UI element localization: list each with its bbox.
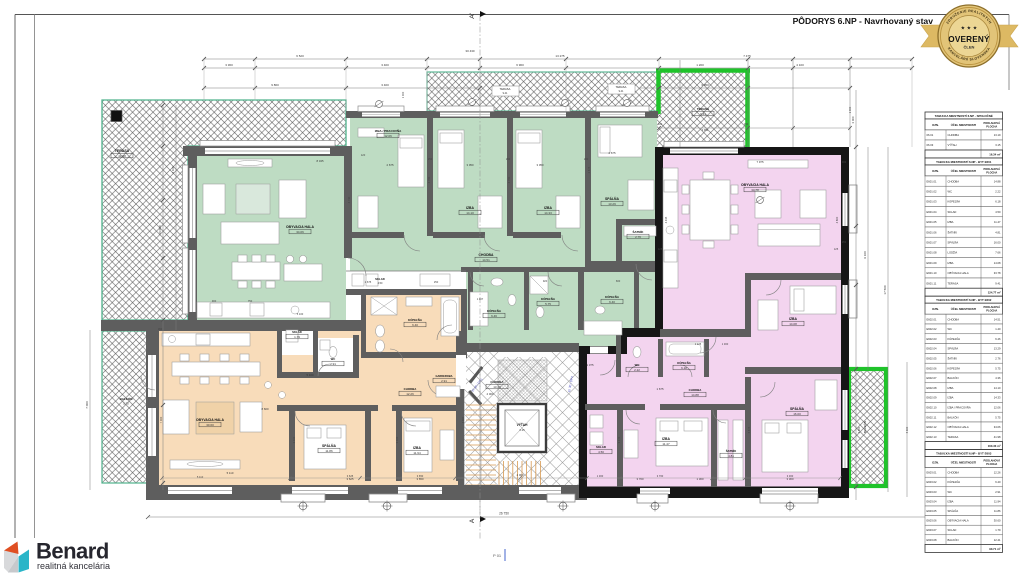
svg-text:250: 250: [506, 157, 511, 161]
svg-text:4 730: 4 730: [347, 196, 351, 203]
svg-text:5.75: 5.75: [995, 415, 1001, 419]
svg-text:6.46: 6.46: [491, 314, 497, 318]
svg-text:E602.13: E602.13: [927, 435, 938, 439]
svg-text:E602.09: E602.09: [927, 396, 938, 400]
svg-text:13.29: 13.29: [994, 347, 1001, 351]
svg-text:TERASA: TERASA: [616, 85, 627, 89]
svg-text:E602.05: E602.05: [927, 357, 938, 361]
svg-text:E602.11: E602.11: [927, 415, 937, 419]
svg-text:WC: WC: [635, 363, 640, 367]
svg-text:1 675: 1 675: [657, 387, 664, 391]
svg-text:125: 125: [658, 247, 663, 251]
svg-text:14.33: 14.33: [544, 211, 552, 215]
svg-text:3 100: 3 100: [292, 436, 296, 443]
svg-text:IZBA / PRACOVŇA: IZBA / PRACOVŇA: [948, 406, 971, 410]
svg-text:WC: WC: [948, 190, 953, 194]
svg-text:3 100: 3 100: [395, 436, 399, 443]
svg-text:6 960: 6 960: [516, 63, 524, 67]
svg-text:11.86: 11.86: [994, 509, 1001, 513]
svg-text:E601.04: E601.04: [927, 210, 938, 214]
svg-text:SKLAD: SKLAD: [948, 210, 957, 214]
svg-text:30 430: 30 430: [465, 49, 475, 53]
svg-text:1.40: 1.40: [995, 327, 1001, 331]
svg-text:KÚPEĽŇA: KÚPEĽŇA: [487, 308, 502, 313]
svg-text:3 170: 3 170: [617, 436, 621, 443]
svg-text:OZN.: OZN.: [932, 307, 939, 311]
svg-text:TERASA: TERASA: [115, 149, 130, 153]
svg-text:3 360: 3 360: [225, 63, 233, 67]
svg-text:SPÁLŇA: SPÁLŇA: [948, 347, 959, 351]
svg-text:IZBA: IZBA: [948, 220, 954, 224]
svg-text:7 000: 7 000: [85, 401, 89, 409]
svg-text:13 275: 13 275: [555, 54, 565, 58]
svg-text:26 750: 26 750: [499, 512, 509, 516]
svg-text:11.94: 11.94: [994, 499, 1001, 503]
svg-text:250: 250: [744, 122, 749, 126]
svg-text:4 000: 4 000: [517, 473, 524, 477]
svg-text:4.81: 4.81: [995, 230, 1001, 234]
svg-text:E602.02: E602.02: [927, 327, 938, 331]
svg-text:SPÁLŇA: SPÁLŇA: [948, 241, 959, 245]
svg-text:ÚČEL MIESTNOSTI: ÚČEL MIESTNOSTI: [951, 306, 977, 311]
svg-text:14.10: 14.10: [466, 211, 474, 215]
svg-text:TABUĽKA MIESTNOSTÍ 6.NP - BYT: TABUĽKA MIESTNOSTÍ 6.NP - BYT E601: [936, 159, 992, 164]
svg-text:2 675: 2 675: [609, 151, 616, 155]
svg-text:360: 360: [158, 327, 163, 331]
svg-text:A: A: [469, 518, 476, 523]
svg-text:SKLAD: SKLAD: [292, 330, 302, 334]
svg-text:CHODBA: CHODBA: [948, 317, 960, 321]
svg-text:4 800: 4 800: [835, 216, 839, 223]
svg-text:E601.10: E601.10: [927, 271, 938, 275]
svg-text:12.26: 12.26: [406, 392, 414, 396]
svg-text:6.40: 6.40: [609, 300, 615, 304]
svg-text:SPÁLŇA: SPÁLŇA: [948, 509, 959, 513]
svg-text:SPÁLŇA: SPÁLŇA: [790, 406, 804, 411]
svg-text:E601.07: E601.07: [927, 241, 938, 245]
svg-text:12.41: 12.41: [994, 538, 1001, 542]
svg-text:CHODBA: CHODBA: [689, 388, 703, 392]
svg-text:6.18: 6.18: [995, 200, 1001, 204]
svg-text:33.78: 33.78: [994, 271, 1001, 275]
svg-text:12.06: 12.06: [994, 406, 1001, 410]
svg-text:9.41: 9.41: [995, 281, 1001, 285]
svg-text:OBÝVACIA HALA: OBÝVACIA HALA: [948, 519, 969, 523]
svg-text:KÚPEĽŇA: KÚPEĽŇA: [408, 317, 423, 322]
svg-text:16 000: 16 000: [158, 225, 162, 235]
svg-text:KÚPEĽŇA: KÚPEĽŇA: [677, 360, 691, 365]
svg-text:OBYVACIA HALA: OBYVACIA HALA: [196, 418, 224, 422]
svg-text:TERASA: TERASA: [500, 87, 511, 91]
svg-text:E603.06: E603.06: [927, 519, 938, 523]
svg-text:SKLAD: SKLAD: [948, 528, 957, 532]
svg-text:3 050: 3 050: [537, 163, 544, 167]
svg-text:3.15: 3.15: [995, 143, 1001, 147]
svg-text:5 110: 5 110: [197, 475, 204, 479]
svg-text:300: 300: [842, 160, 847, 164]
svg-text:4 000: 4 000: [461, 416, 465, 423]
svg-text:TERASA: TERASA: [697, 107, 710, 111]
svg-text:4.50: 4.50: [995, 210, 1001, 214]
svg-text:9 100: 9 100: [863, 251, 867, 259]
svg-text:14.88: 14.88: [691, 393, 699, 397]
svg-text:7 975: 7 975: [757, 160, 764, 164]
svg-text:SPÁLŇA: SPÁLŇA: [322, 443, 336, 448]
svg-text:4 750: 4 750: [507, 176, 511, 183]
svg-text:CHODBA: CHODBA: [490, 380, 504, 384]
svg-text:OBYVACIA HALA: OBYVACIA HALA: [741, 183, 769, 187]
svg-text:CHODBA: CHODBA: [404, 387, 418, 391]
svg-text:41.98: 41.98: [994, 435, 1001, 439]
svg-text:Benard: Benard: [36, 539, 109, 564]
svg-text:4 750: 4 750: [427, 176, 431, 183]
svg-text:7.66: 7.66: [995, 251, 1001, 255]
svg-text:9.41: 9.41: [503, 92, 508, 95]
svg-text:E601.08: E601.08: [927, 251, 938, 255]
svg-text:IZBA: IZBA: [948, 499, 954, 503]
svg-text:IZBA: IZBA: [789, 317, 797, 321]
svg-text:13.29: 13.29: [608, 202, 616, 206]
svg-text:KÚPEĽŇA: KÚPEĽŇA: [948, 200, 961, 204]
svg-text:16.34 m²: 16.34 m²: [989, 153, 1000, 157]
svg-text:4 000: 4 000: [487, 392, 494, 396]
svg-text:IZBA: IZBA: [948, 386, 954, 390]
svg-text:4.36: 4.36: [995, 376, 1001, 380]
svg-text:3 400: 3 400: [381, 63, 389, 67]
svg-text:E603.04: E603.04: [927, 499, 938, 503]
svg-text:4.50: 4.50: [378, 282, 383, 285]
svg-text:E603.02: E603.02: [927, 480, 938, 484]
svg-text:KÚPEĽŇA: KÚPEĽŇA: [948, 366, 961, 370]
svg-text:1 300: 1 300: [697, 477, 704, 481]
svg-text:8 600: 8 600: [262, 407, 269, 411]
svg-text:2.91: 2.91: [441, 379, 447, 383]
svg-text:P 01: P 01: [493, 553, 502, 558]
svg-text:600: 600: [616, 279, 621, 283]
svg-text:4 100: 4 100: [796, 63, 804, 67]
svg-text:★ ★ ★: ★ ★ ★: [961, 26, 978, 32]
svg-text:KÚPEĽŇA: KÚPEĽŇA: [948, 337, 961, 341]
svg-text:13.19: 13.19: [493, 385, 501, 389]
svg-text:OBÝVACIA HALA: OBÝVACIA HALA: [948, 425, 969, 429]
svg-text:06.01: 06.01: [927, 133, 934, 137]
svg-text:PLOCHA: PLOCHA: [986, 462, 997, 466]
svg-text:11.86: 11.86: [325, 449, 333, 453]
svg-text:124.77 m²: 124.77 m²: [988, 291, 1001, 295]
svg-text:1.79: 1.79: [995, 528, 1001, 532]
svg-text:1 000: 1 000: [401, 91, 405, 98]
svg-text:OZN.: OZN.: [932, 169, 939, 173]
svg-text:E603.07: E603.07: [927, 528, 938, 532]
svg-text:ŠATNÍK: ŠATNÍK: [726, 448, 737, 453]
svg-text:WC: WC: [948, 327, 953, 331]
svg-text:ÚČEL MIESTNOSTI: ÚČEL MIESTNOSTI: [951, 460, 977, 465]
svg-text:2.22: 2.22: [995, 190, 1001, 194]
svg-text:3 300: 3 300: [787, 474, 794, 478]
svg-text:E602.08: E602.08: [927, 386, 938, 390]
svg-text:90.71 m²: 90.71 m²: [989, 547, 1000, 551]
svg-text:250: 250: [434, 280, 439, 284]
svg-text:125: 125: [834, 247, 839, 251]
svg-text:2.22: 2.22: [634, 368, 640, 372]
svg-text:14.08: 14.08: [789, 322, 797, 326]
svg-text:1 000: 1 000: [848, 106, 852, 113]
svg-text:200: 200: [584, 157, 589, 161]
svg-text:34.06: 34.06: [296, 230, 304, 234]
svg-text:OZN.: OZN.: [932, 461, 939, 465]
svg-text:41.98: 41.98: [118, 154, 126, 158]
svg-text:PLOCHA: PLOCHA: [986, 171, 997, 175]
svg-text:16.00: 16.00: [793, 412, 801, 416]
svg-text:CHODBA: CHODBA: [948, 179, 960, 183]
svg-text:2 900: 2 900: [857, 426, 861, 433]
svg-text:11.94: 11.94: [413, 451, 421, 455]
svg-text:14.88: 14.88: [994, 179, 1001, 183]
svg-text:OBÝVACIA HALA: OBÝVACIA HALA: [948, 271, 969, 275]
svg-text:WC: WC: [331, 357, 336, 361]
svg-text:SPÁLŇA: SPÁLŇA: [605, 196, 619, 201]
svg-text:2 675: 2 675: [387, 163, 394, 167]
svg-text:1 225: 1 225: [695, 342, 702, 346]
svg-text:TERASA: TERASA: [948, 435, 959, 439]
svg-text:E603.03: E603.03: [927, 490, 938, 494]
svg-text:1 407: 1 407: [477, 297, 484, 301]
svg-text:SKLAD: SKLAD: [375, 277, 385, 281]
svg-text:14.51: 14.51: [482, 258, 490, 262]
svg-text:SKLAD: SKLAD: [596, 445, 606, 449]
svg-text:6.46: 6.46: [995, 337, 1001, 341]
svg-text:2.76: 2.76: [635, 235, 641, 239]
svg-text:TERASA: TERASA: [948, 281, 959, 285]
svg-text:E602.04: E602.04: [927, 347, 938, 351]
svg-text:PLOCHA: PLOCHA: [986, 309, 997, 313]
svg-text:E602.03: E602.03: [927, 337, 938, 341]
svg-text:6.40: 6.40: [995, 480, 1001, 484]
svg-text:KÚPEĽŇA: KÚPEĽŇA: [541, 296, 556, 301]
svg-text:14.10: 14.10: [994, 386, 1001, 390]
svg-text:OBYVACIA HALA: OBYVACIA HALA: [286, 225, 314, 229]
svg-text:920: 920: [543, 279, 548, 283]
svg-text:1 300: 1 300: [597, 474, 604, 478]
svg-text:ČLEN: ČLEN: [964, 45, 975, 50]
svg-text:E601.06: E601.06: [927, 230, 938, 234]
svg-text:3 650: 3 650: [417, 474, 424, 478]
svg-text:BALKÓN: BALKÓN: [862, 421, 867, 433]
svg-text:30.60: 30.60: [994, 519, 1001, 523]
svg-text:E603.01: E603.01: [927, 471, 938, 475]
svg-text:2 675: 2 675: [587, 166, 591, 173]
svg-text:400: 400: [658, 122, 663, 126]
svg-text:ÚČEL MIESTNOSTI: ÚČEL MIESTNOSTI: [951, 168, 977, 173]
svg-text:3 050: 3 050: [467, 163, 474, 167]
svg-text:3 760: 3 760: [657, 474, 664, 478]
svg-text:4.81: 4.81: [728, 454, 734, 458]
svg-text:E601.05: E601.05: [927, 220, 938, 224]
svg-text:E602.12: E602.12: [927, 425, 938, 429]
svg-text:TABUĽKA MIESTNOSTÍ 6.NP - SPOL: TABUĽKA MIESTNOSTÍ 6.NP - SPOLOČNÉ: [935, 113, 993, 118]
svg-text:9 860: 9 860: [271, 83, 279, 87]
svg-text:250: 250: [842, 240, 847, 244]
svg-text:TABUĽKA MIESTNOSTÍ 6.NP - BYT: TABUĽKA MIESTNOSTÍ 6.NP - BYT E603: [936, 451, 992, 456]
svg-text:30.60: 30.60: [206, 423, 214, 427]
svg-text:CHODBA: CHODBA: [948, 133, 960, 137]
svg-text:BALKÓN: BALKÓN: [120, 396, 133, 401]
svg-text:12.06: 12.06: [384, 134, 392, 138]
svg-text:5 110: 5 110: [227, 471, 234, 475]
svg-text:TABUĽKA MIESTNOSTÍ 6.NP - BYT: TABUĽKA MIESTNOSTÍ 6.NP - BYT E602: [936, 297, 992, 302]
svg-text:A': A': [469, 13, 476, 19]
svg-text:IZBA: IZBA: [948, 261, 954, 265]
svg-text:CHODBA: CHODBA: [479, 253, 494, 257]
svg-text:06.03: 06.03: [927, 143, 934, 147]
svg-text:IZBA: IZBA: [662, 437, 670, 441]
svg-text:13.19: 13.19: [994, 133, 1001, 137]
svg-text:3 950: 3 950: [702, 128, 709, 132]
svg-text:3 000: 3 000: [851, 116, 855, 123]
svg-text:750: 750: [248, 299, 253, 303]
svg-text:4 435: 4 435: [664, 216, 668, 223]
svg-text:OZN.: OZN.: [932, 123, 939, 127]
svg-text:5.75: 5.75: [545, 302, 551, 306]
svg-text:E602.07: E602.07: [927, 376, 938, 380]
svg-text:5 100: 5 100: [307, 373, 314, 377]
svg-text:E602.10: E602.10: [927, 406, 938, 410]
svg-text:IZBA: IZBA: [948, 396, 954, 400]
svg-text:250: 250: [428, 157, 433, 161]
svg-text:6.40: 6.40: [412, 323, 418, 327]
svg-text:VÝŤAH: VÝŤAH: [517, 422, 529, 427]
svg-text:7 475: 7 475: [743, 54, 751, 58]
svg-text:7 000: 7 000: [159, 416, 163, 423]
svg-text:KÚPEĽŇA: KÚPEĽŇA: [948, 480, 961, 484]
svg-text:14.33: 14.33: [994, 396, 1001, 400]
svg-text:12.26: 12.26: [994, 471, 1001, 475]
svg-text:ÚČEL MIESTNOSTI: ÚČEL MIESTNOSTI: [951, 122, 977, 127]
svg-text:E601.03: E601.03: [927, 200, 938, 204]
svg-text:17 500: 17 500: [883, 285, 887, 295]
svg-text:1 375: 1 375: [587, 363, 594, 367]
svg-text:E601.02: E601.02: [927, 190, 938, 194]
svg-text:KÚPEĽŇA: KÚPEĽŇA: [605, 294, 620, 299]
svg-text:E603.08: E603.08: [927, 538, 938, 542]
svg-text:11.47: 11.47: [662, 442, 670, 446]
svg-text:120: 120: [361, 153, 366, 157]
svg-text:3 400: 3 400: [381, 83, 389, 87]
svg-text:E602.01: E602.01: [927, 317, 938, 321]
svg-text:E601.01: E601.01: [927, 179, 938, 183]
svg-text:5.75: 5.75: [123, 401, 129, 405]
svg-text:6 875: 6 875: [747, 426, 751, 433]
svg-text:ŠATNÍK: ŠATNÍK: [633, 229, 645, 234]
svg-text:2 675: 2 675: [365, 280, 372, 284]
svg-text:11.47: 11.47: [994, 220, 1001, 224]
svg-text:1 300: 1 300: [722, 342, 729, 346]
svg-text:IZBA: IZBA: [413, 446, 421, 450]
svg-text:14.51: 14.51: [994, 317, 1001, 321]
svg-text:14.08: 14.08: [994, 261, 1001, 265]
svg-text:9.41: 9.41: [619, 90, 624, 93]
svg-text:2.91: 2.91: [995, 490, 1001, 494]
svg-text:6.18: 6.18: [681, 366, 687, 370]
svg-text:33.78: 33.78: [751, 188, 759, 192]
svg-text:PÔDORYS 6.NP - Navrhovaný stav: PÔDORYS 6.NP - Navrhovaný stav: [793, 15, 934, 26]
svg-text:IZBA / PRACOVŇA: IZBA / PRACOVŇA: [375, 128, 402, 133]
svg-text:3 760: 3 760: [637, 477, 644, 481]
svg-text:E602.06: E602.06: [927, 366, 938, 370]
svg-text:1.79: 1.79: [294, 335, 300, 339]
svg-text:4.50: 4.50: [598, 450, 604, 454]
svg-text:34.06: 34.06: [994, 425, 1001, 429]
svg-text:E601.11: E601.11: [927, 281, 937, 285]
svg-text:WC: WC: [948, 490, 953, 494]
svg-text:OVERENÝ: OVERENÝ: [948, 33, 990, 44]
svg-text:PLOCHA: PLOCHA: [986, 125, 997, 129]
svg-text:8 345: 8 345: [317, 159, 324, 163]
svg-text:5 100: 5 100: [297, 312, 304, 316]
svg-text:16.00: 16.00: [994, 241, 1001, 245]
svg-text:E603.05: E603.05: [927, 509, 938, 513]
svg-text:2.91: 2.91: [330, 362, 336, 366]
svg-text:E601.09: E601.09: [927, 261, 938, 265]
svg-text:3 625: 3 625: [347, 474, 354, 478]
svg-text:1 200: 1 200: [696, 63, 704, 67]
svg-text:6 520: 6 520: [296, 54, 304, 58]
svg-text:5 300: 5 300: [905, 426, 909, 433]
svg-text:CHODBA: CHODBA: [948, 471, 960, 475]
svg-text:2.76: 2.76: [995, 357, 1001, 361]
svg-text:realitná kancelária: realitná kancelária: [37, 561, 110, 571]
svg-text:IZBA: IZBA: [544, 206, 552, 210]
svg-text:9.41: 9.41: [700, 112, 706, 116]
svg-text:IZBA: IZBA: [466, 206, 474, 210]
svg-text:900: 900: [212, 299, 217, 303]
svg-text:3.15: 3.15: [519, 428, 525, 432]
svg-text:1 100: 1 100: [171, 166, 175, 173]
svg-text:3 950: 3 950: [701, 83, 709, 87]
svg-text:5.75: 5.75: [995, 366, 1001, 370]
svg-text:160.33 m²: 160.33 m²: [988, 444, 1001, 448]
svg-text:GARDEROBA: GARDEROBA: [435, 374, 452, 378]
